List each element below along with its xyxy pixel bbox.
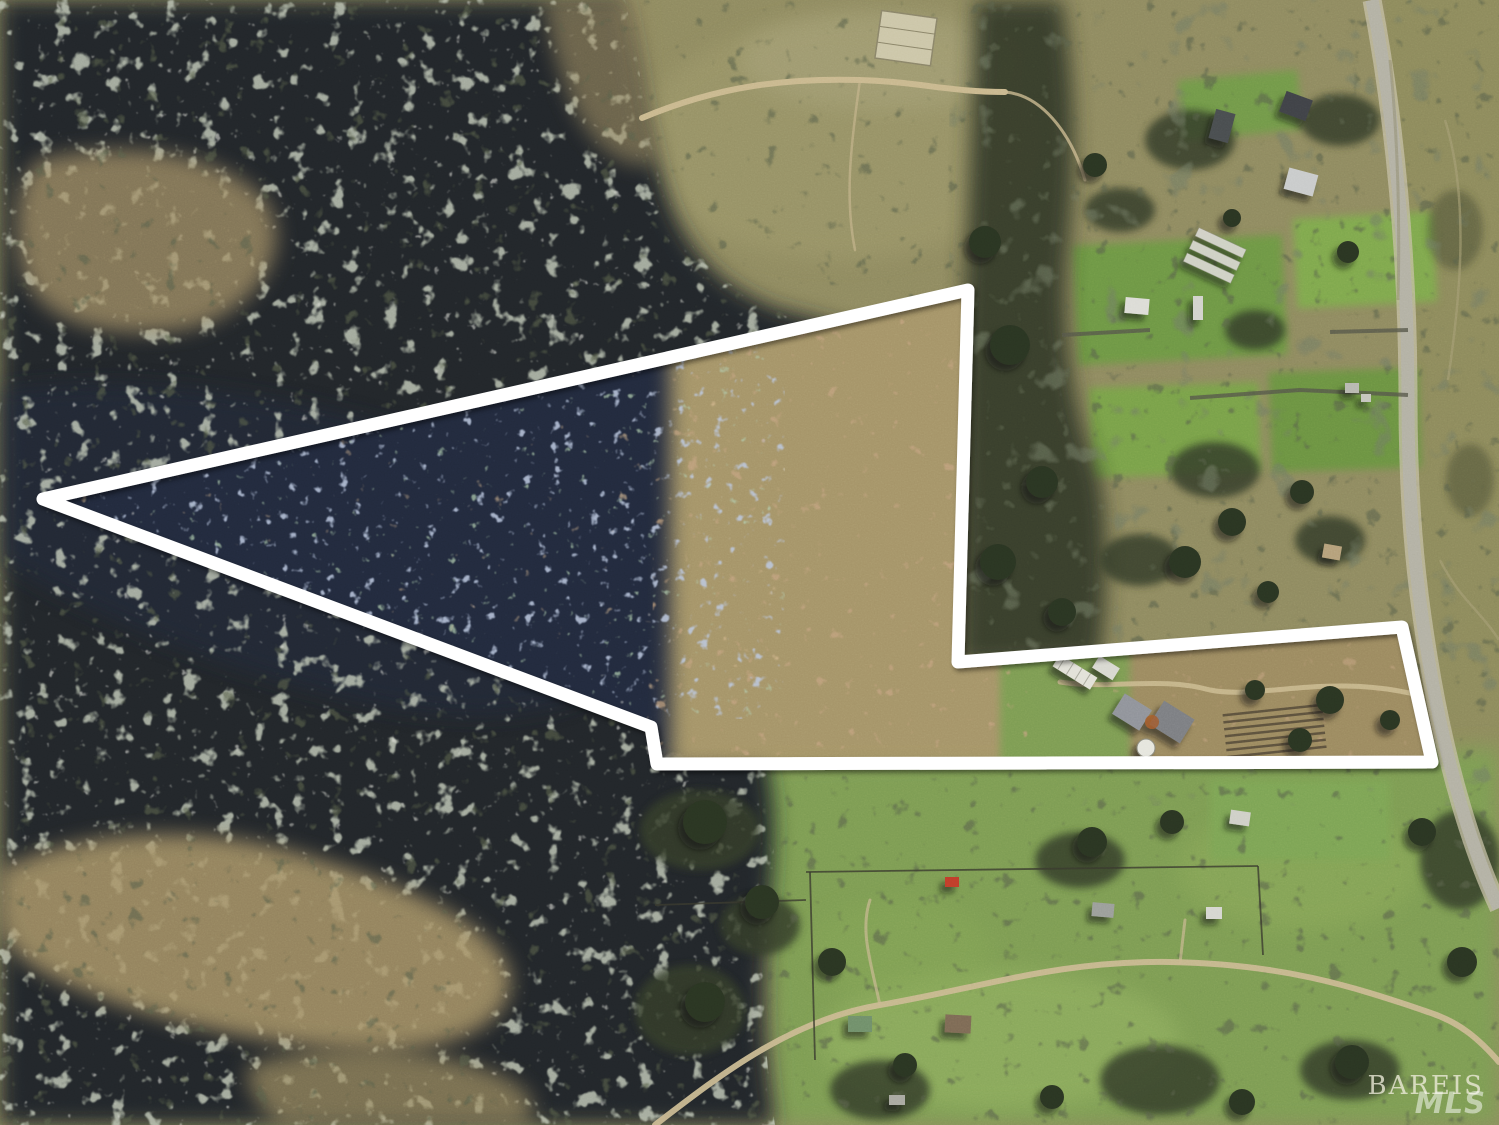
- watermark-mls: MLS: [1415, 1086, 1486, 1120]
- aerial-photo: BAREIS MLS: [0, 0, 1499, 1125]
- aerial-photo-canvas: BAREIS MLS: [0, 0, 1499, 1125]
- photo-grain: [0, 0, 1499, 1125]
